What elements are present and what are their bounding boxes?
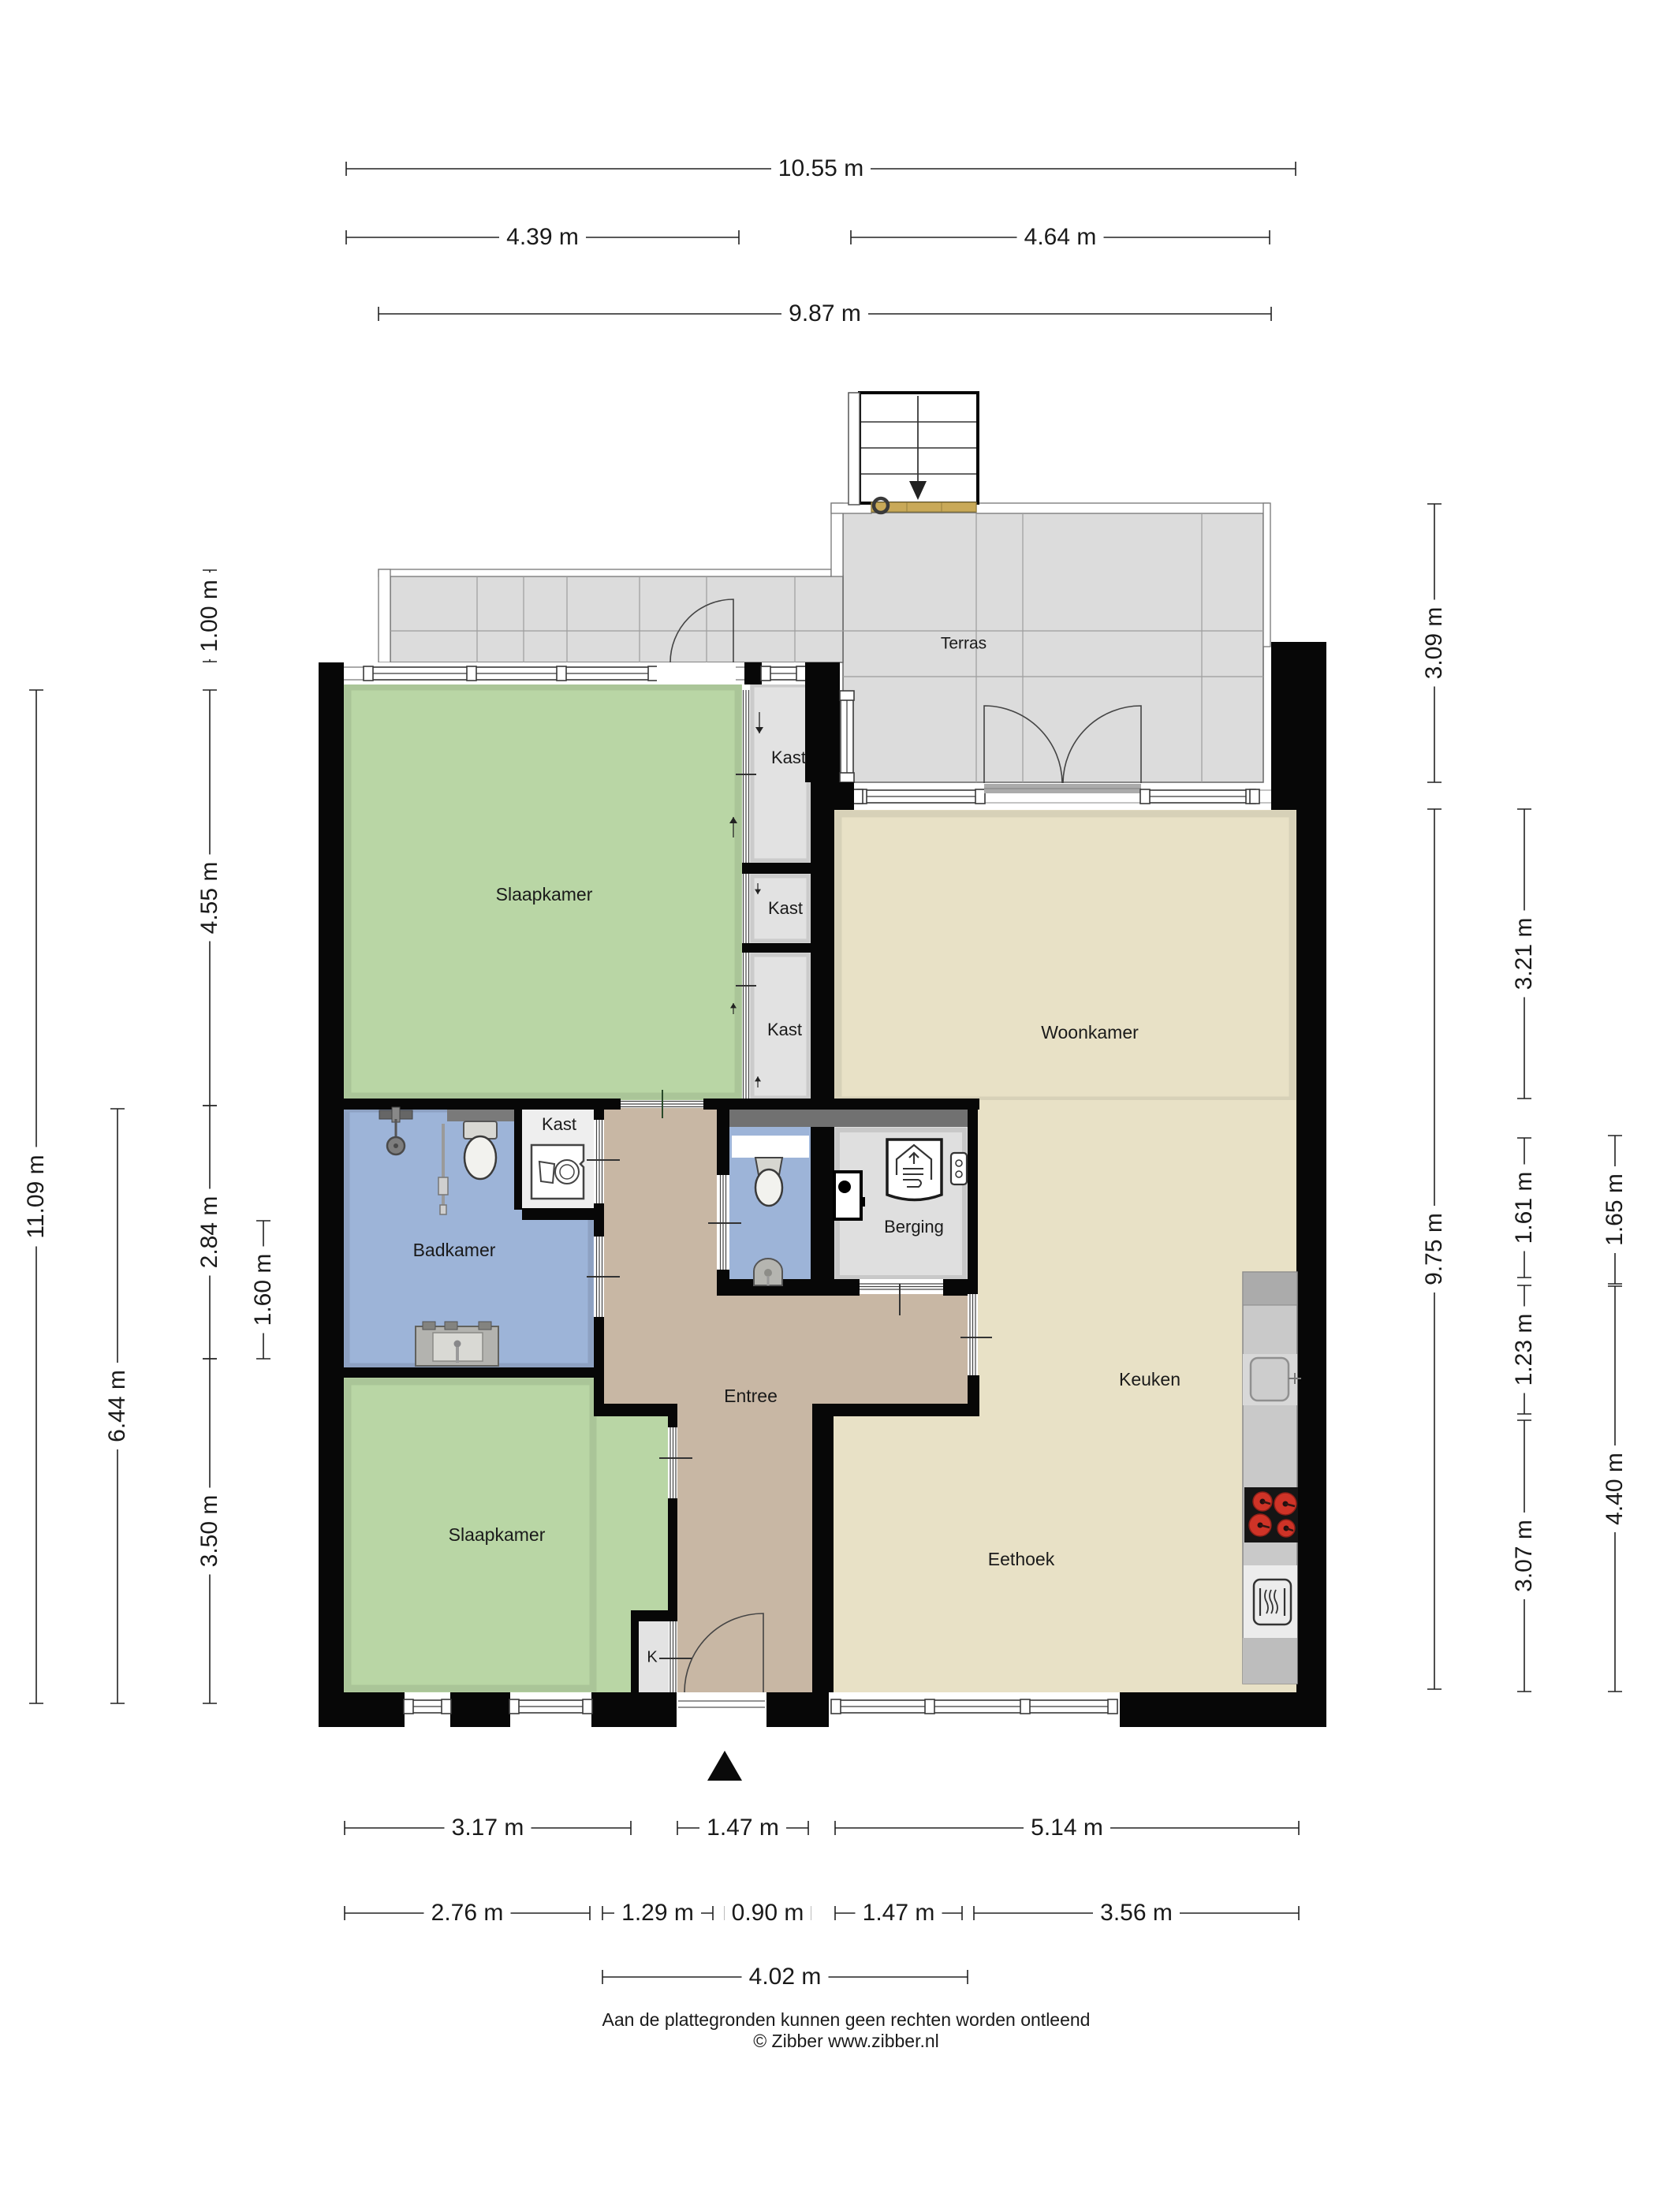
svg-text:2.76 m: 2.76 m (431, 1900, 504, 1926)
svg-text:Slaapkamer: Slaapkamer (449, 1524, 546, 1545)
svg-text:K: K (647, 1648, 658, 1666)
svg-text:1.47 m: 1.47 m (863, 1900, 935, 1926)
svg-text:1.65 m: 1.65 m (1602, 1173, 1628, 1246)
svg-text:9.87 m: 9.87 m (789, 300, 861, 326)
svg-text:Berging: Berging (884, 1217, 944, 1237)
svg-text:1.61 m: 1.61 m (1511, 1172, 1537, 1244)
svg-text:4.40 m: 4.40 m (1602, 1453, 1628, 1525)
svg-text:Kast: Kast (767, 1020, 802, 1039)
svg-text:Eethoek: Eethoek (988, 1549, 1055, 1569)
svg-text:1.23 m: 1.23 m (1511, 1314, 1537, 1386)
svg-text:3.56 m: 3.56 m (1100, 1900, 1173, 1926)
svg-text:Aan de plattegronden kunnen ge: Aan de plattegronden kunnen geen rechten… (602, 2009, 1091, 2030)
svg-text:10.55 m: 10.55 m (778, 155, 863, 181)
svg-text:1.47 m: 1.47 m (707, 1815, 779, 1841)
svg-text:1.00 m: 1.00 m (196, 580, 222, 652)
svg-text:© Zibber www.zibber.nl: © Zibber www.zibber.nl (753, 2031, 939, 2051)
svg-text:Keuken: Keuken (1119, 1369, 1180, 1389)
svg-text:4.64 m: 4.64 m (1024, 224, 1097, 250)
svg-text:4.55 m: 4.55 m (196, 862, 222, 934)
svg-text:3.21 m: 3.21 m (1511, 918, 1537, 990)
svg-text:3.07 m: 3.07 m (1511, 1520, 1537, 1592)
svg-text:3.17 m: 3.17 m (452, 1815, 524, 1841)
svg-text:4.39 m: 4.39 m (506, 224, 579, 250)
svg-text:0.90 m: 0.90 m (732, 1900, 804, 1926)
svg-text:3.09 m: 3.09 m (1421, 607, 1447, 680)
svg-text:Slaapkamer: Slaapkamer (496, 884, 593, 905)
svg-text:Woonkamer: Woonkamer (1041, 1022, 1139, 1043)
svg-text:Badkamer: Badkamer (413, 1240, 496, 1260)
svg-text:Kast: Kast (542, 1114, 576, 1134)
svg-text:5.14 m: 5.14 m (1031, 1815, 1103, 1841)
svg-text:Kast: Kast (768, 898, 803, 918)
svg-text:1.60 m: 1.60 m (250, 1254, 276, 1326)
svg-text:Kast: Kast (771, 748, 806, 767)
svg-text:3.50 m: 3.50 m (196, 1495, 222, 1568)
svg-text:Entree: Entree (724, 1386, 778, 1406)
svg-text:4.02 m: 4.02 m (749, 1964, 822, 1990)
svg-text:9.75 m: 9.75 m (1421, 1213, 1447, 1285)
svg-text:2.84 m: 2.84 m (196, 1196, 222, 1269)
svg-text:6.44 m: 6.44 m (104, 1370, 130, 1442)
svg-text:1.29 m: 1.29 m (621, 1900, 694, 1926)
svg-text:11.09 m: 11.09 m (23, 1154, 49, 1238)
svg-text:Terras: Terras (941, 635, 987, 653)
